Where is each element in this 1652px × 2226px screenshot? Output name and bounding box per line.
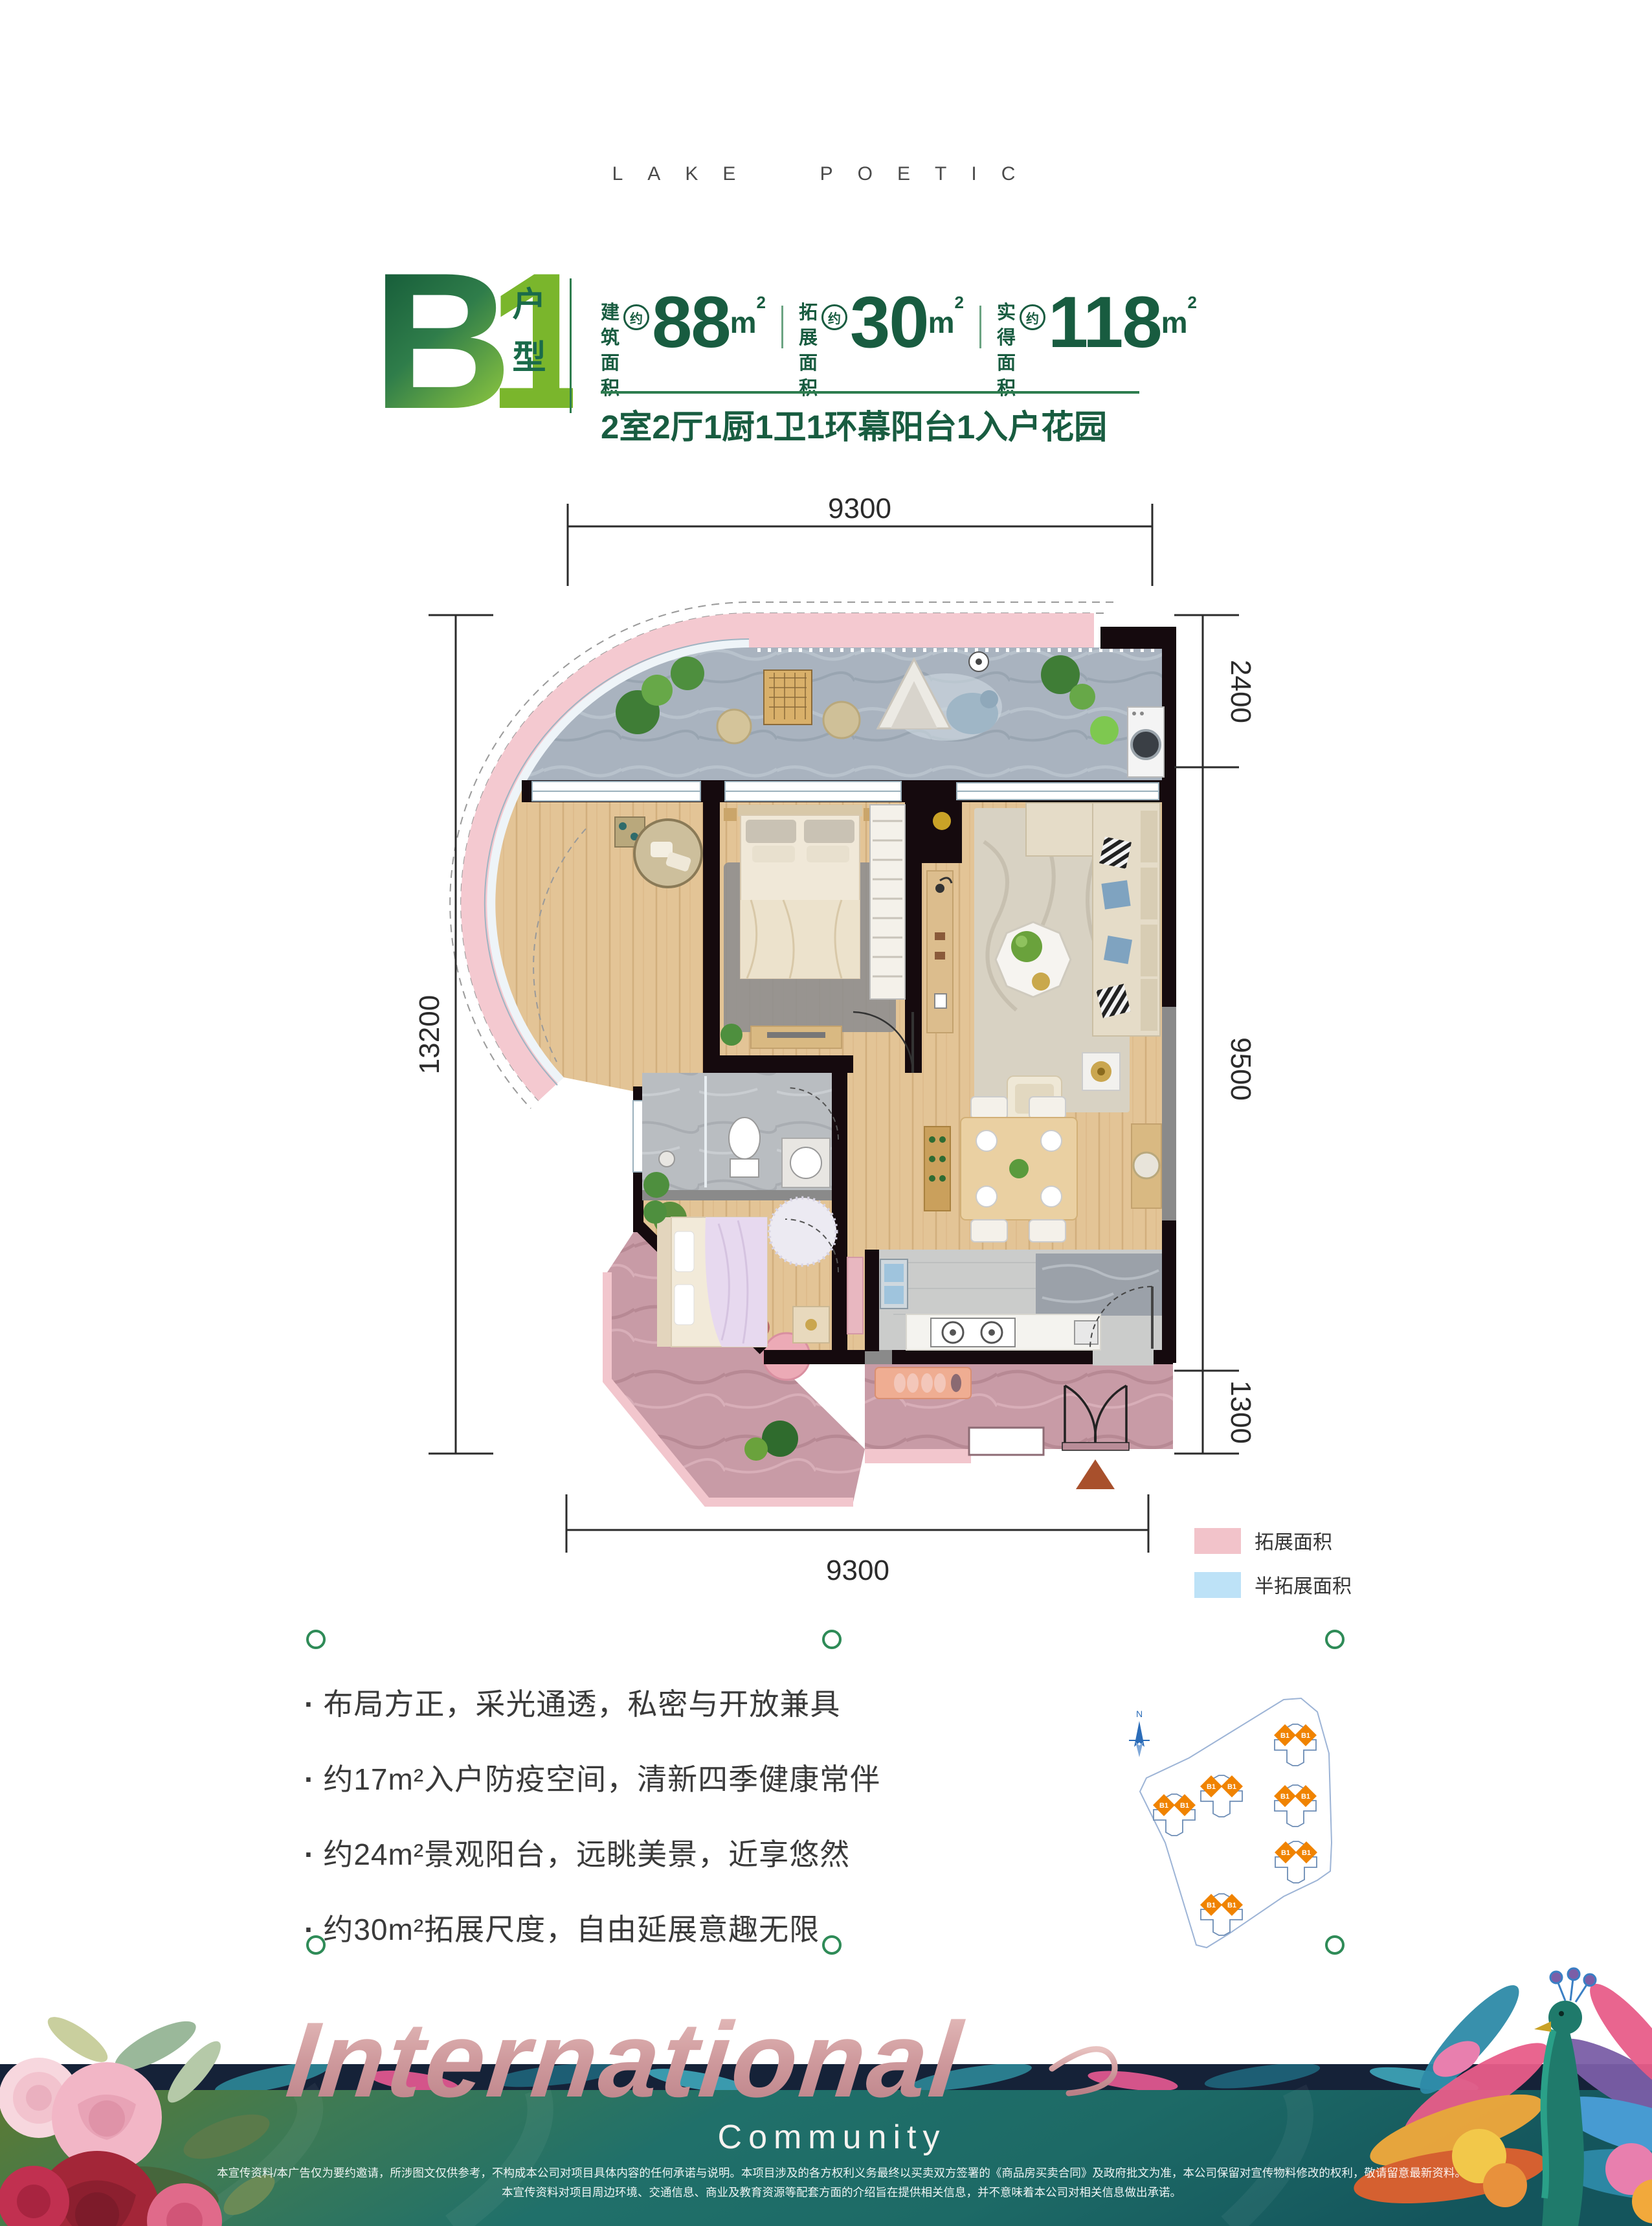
layout-description: 2室2厅1厨1卫1环幕阳台1入户花园 [601,400,1144,448]
legend-swatch-semi [1194,1572,1241,1598]
floorplan: 9300 9300 13200 2400 9500 1300 拓展面积 半拓展面… [388,466,1424,1606]
minimap-building: B1B1 [1274,1724,1317,1766]
unit-marker-label: B1 [1301,1793,1310,1801]
header-vertical-rule [570,278,572,413]
zebra-pillow [1099,837,1132,869]
area-unit: m2 [730,293,766,340]
shower-drain [659,1151,675,1167]
banner-subtitle: Community [718,2119,946,2156]
divider-top [304,1626,1359,1652]
floor-mat [823,702,860,738]
headboard [657,1217,671,1347]
bathroom [642,1073,838,1198]
minimap-building: B1B1 [1275,1841,1317,1883]
wine-cabinet [924,1127,950,1211]
dining-chair [971,1097,1007,1119]
feature-list: ·布局方正，采光通透，私密与开放兼具 ·约17m²入户防疫空间，清新四季健康常伴… [304,1681,1113,1981]
kitchen-island [1036,1254,1162,1316]
wardrobe [870,805,905,999]
floor-mat [717,710,751,743]
area-label: 拓展 [799,300,818,351]
bullet-dot-icon: · [304,1687,314,1722]
unit-type-label: 户型 [509,286,542,392]
area-value: 88 [652,286,730,359]
porch-step-notch [969,1428,1044,1455]
minimap-building: B1B1 [1274,1785,1317,1827]
feature-item: ·布局方正，采光通透，私密与开放兼具 [304,1681,1113,1724]
area-unit: m2 [1161,293,1197,340]
pantry-door [847,1257,863,1334]
sofa-chaise [1026,803,1097,856]
disclaimer-line-1: 本宣传资料/本广告仅为要约邀请，所涉图文仅供参考，不构成本公司对项目具体内容的任… [217,2166,1466,2179]
area-stats: 建筑面积 约 88 m2 拓展面积 约 30 m2 实得面积 约 118 m2 [601,286,1157,402]
legend-label-semi: 半拓展面积 [1255,1576,1352,1597]
unit-marker-label: B1 [1207,1902,1216,1909]
poster-page: LAKE POETIC B 1 户型 建筑面积 约 88 m2 拓展面积 约 3… [0,0,1652,2226]
area-group-actual: 实得面积 约 118 m2 [997,286,1197,402]
blue-pillow [1101,880,1130,909]
entrance-marker-icon [1076,1459,1115,1489]
area-label: 面积 [799,351,818,401]
plan-legend: 拓展面积 半拓展面积 [1194,1528,1352,1598]
legend-label-expansion: 拓展面积 [1255,1532,1332,1553]
kitchen [847,1250,1162,1350]
area-label: 面积 [997,351,1016,401]
unit-marker-label: B1 [1227,1783,1236,1791]
minimap-building: B1B1 [1200,1775,1243,1817]
bullet-dot-icon: · [304,1762,314,1797]
header-horizontal-rule [601,391,1139,394]
dining-chair [1029,1097,1066,1119]
area-value: 30 [850,286,928,359]
approx-badge: 约 [1020,304,1045,330]
unit-marker-label: B1 [1159,1802,1168,1810]
bullet-dot-icon: · [304,1912,314,1947]
area-label: 建筑 [601,300,619,351]
brand-logo: LAKE POETIC [0,163,1652,185]
feature-item: ·约24m²景观阳台，远眺美景，近享悠然 [304,1831,1113,1874]
dim-top: 9300 [828,493,891,524]
north-compass-icon: N [1129,1709,1150,1757]
area-value: 118 [1048,286,1161,359]
entrance-porch [865,1363,1173,1463]
unit-marker-label: B1 [1227,1902,1236,1909]
flower-bouquet [0,2010,281,2226]
dim-left: 13200 [414,995,445,1074]
area-separator [781,306,783,348]
unit-marker-label: B1 [1280,1732,1289,1740]
area-unit: m2 [928,293,964,340]
area-group-expand: 拓展面积 约 30 m2 [799,286,964,402]
unit-marker-label: B1 [1207,1783,1216,1791]
basin [790,1147,821,1178]
divider-circle [1326,1631,1343,1648]
dim-bottom: 9300 [826,1555,889,1586]
divider-circle [307,1631,324,1648]
approx-badge: 约 [623,304,649,330]
legend-swatch-expansion [1194,1528,1241,1554]
unit-marker-label: B1 [1180,1802,1189,1810]
dim-right-2: 9500 [1225,1037,1256,1101]
feature-item: ·约30m²拓展尺度，自由延展意趣无限 [304,1906,1113,1949]
plant [643,1172,669,1198]
area-group-built: 建筑面积 约 88 m2 [601,286,766,402]
bullet-dot-icon: · [304,1837,314,1872]
disclaimer-line-2: 本宣传资料对项目周边环境、交通信息、商业及教育资源等配套方面的介绍旨在提供相关信… [502,2186,1181,2199]
dim-right-3: 1300 [1225,1380,1256,1444]
door-threshold [1062,1443,1129,1450]
divider-circle [823,1631,840,1648]
unit-marker-label: B1 [1301,1732,1310,1740]
bottom-banner: International Community 本宣传资料/本广告仅为要约邀请，… [0,1962,1652,2226]
unit-marker-label: B1 [1302,1849,1311,1857]
feature-item: ·约17m²入户防疫空间，清新四季健康常伴 [304,1756,1113,1799]
area-separator [979,306,981,348]
dining-chair [1029,1220,1066,1242]
round-mirror [1133,1152,1159,1178]
approx-badge: 约 [821,304,847,330]
plant [720,1024,742,1046]
banner-script-text: International [282,2000,968,2119]
dining-chair [971,1220,1007,1242]
unit-marker-label: B1 [1281,1849,1290,1857]
unit-marker-label: B1 [1280,1793,1289,1801]
svg-text:N: N [1136,1709,1143,1719]
kitchen-door-opening [1093,1349,1154,1366]
site-minimap: N B1B1B1B1B1B1B1B1B1B1B1B1 [1125,1678,1501,1992]
area-label: 面积 [601,351,619,401]
minimap-buildings: B1B1B1B1B1B1B1B1B1B1B1B1 [1153,1724,1317,1935]
toilet [729,1118,760,1159]
fluffy-rug [769,1198,836,1265]
plant [643,1200,667,1224]
area-label: 实得 [997,300,1016,351]
dim-right-1: 2400 [1225,660,1256,723]
